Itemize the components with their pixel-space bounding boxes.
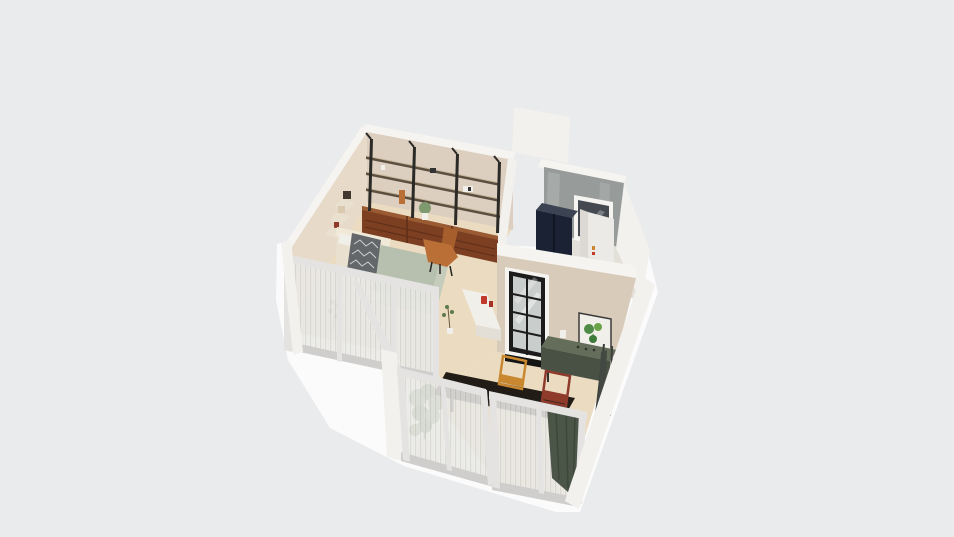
plant-pot [447,328,453,334]
white-cabinet[interactable] [588,212,614,264]
shelf-plant [419,202,431,214]
console-item [585,348,588,351]
dark-dot [468,187,471,191]
white-cabinet-side [580,209,588,258]
red-pot [489,301,493,307]
floorplan-canvas [0,0,954,537]
mixer [560,330,566,338]
plant-pot [422,213,428,220]
glazing-post [337,266,342,362]
red-kettle [481,296,487,304]
red-object [334,222,339,228]
framed-photo [343,191,351,199]
art-plant [584,324,594,334]
plant-leaf [450,310,454,314]
apartment-render [0,0,954,537]
amber-vase [399,190,405,204]
dark-object [430,168,436,173]
cabinet-accent [592,246,595,250]
white-cup [381,165,385,170]
art-plant [594,323,602,331]
cabinet-accent [592,252,595,255]
glazing-post [433,287,439,383]
console-item [577,346,580,349]
plant-leaf [442,313,446,317]
console-item [593,349,596,352]
plant-leaf [445,305,449,309]
beige-frame [338,206,345,213]
